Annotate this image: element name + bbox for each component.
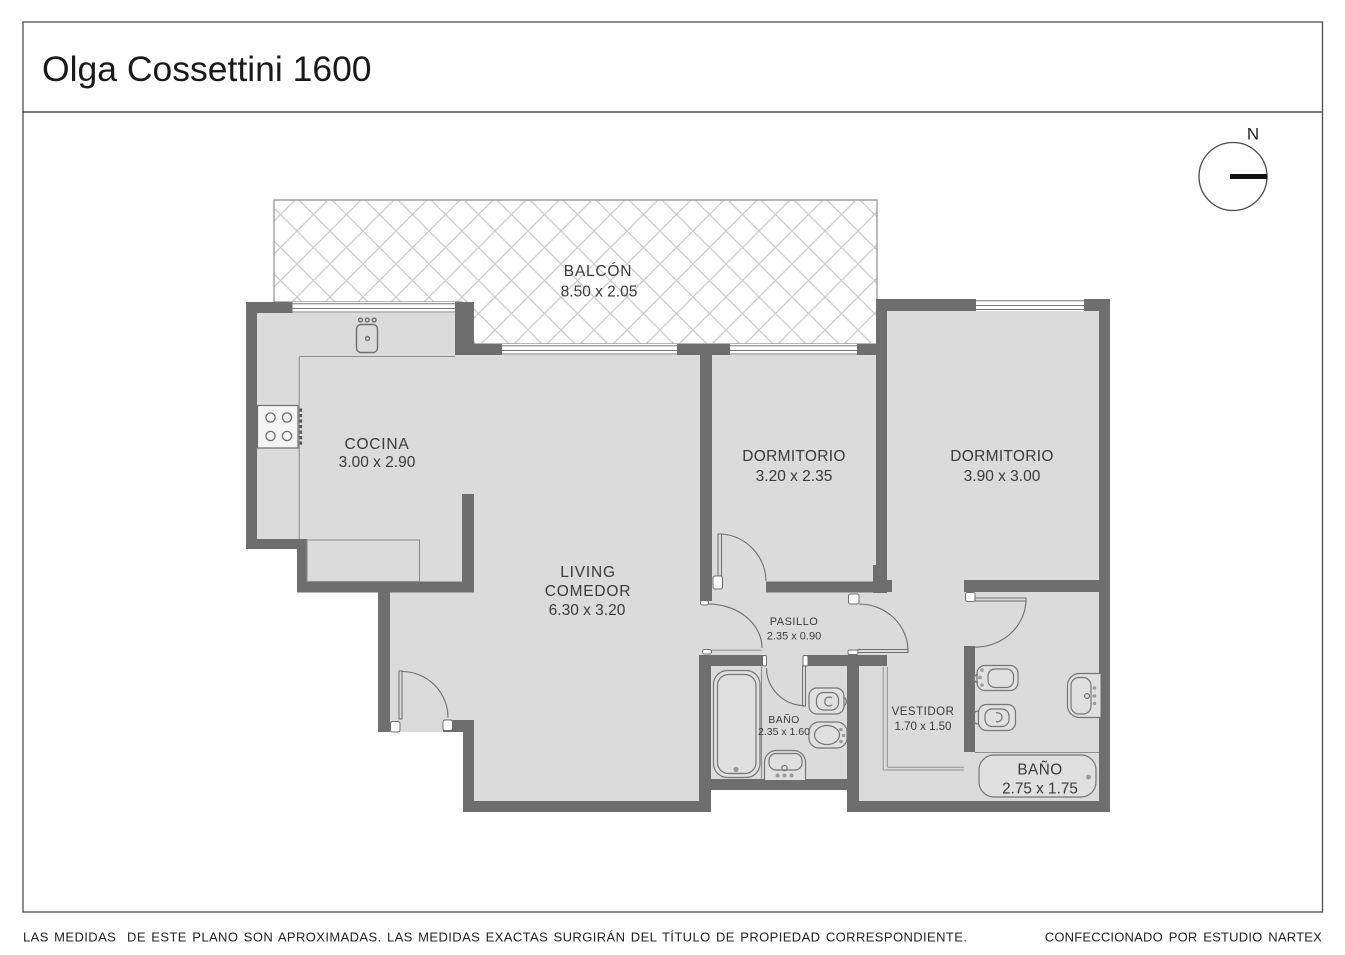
svg-text:CONFECCIONADO POR ESTUDIO NART: CONFECCIONADO POR ESTUDIO NARTEX [1045, 930, 1322, 945]
svg-text:PASILLO: PASILLO [770, 616, 819, 628]
svg-text:LIVING: LIVING [560, 564, 616, 581]
svg-text:BAÑO: BAÑO [1017, 762, 1062, 779]
svg-text:6.30 x 3.20: 6.30 x 3.20 [549, 602, 626, 619]
svg-text:BALCÓN: BALCÓN [564, 263, 633, 280]
svg-text:LAS MEDIDAS DE ESTE PLANO SON: LAS MEDIDAS DE ESTE PLANO SON APROXIMADA… [23, 930, 967, 945]
svg-text:N: N [1247, 125, 1259, 144]
svg-text:BAÑO: BAÑO [768, 713, 799, 726]
svg-text:COMEDOR: COMEDOR [545, 583, 632, 600]
svg-text:DORMITORIO: DORMITORIO [950, 448, 1053, 465]
svg-text:DORMITORIO: DORMITORIO [742, 448, 845, 465]
svg-text:2.35 x 0.90: 2.35 x 0.90 [767, 631, 821, 643]
svg-text:COCINA: COCINA [344, 436, 409, 453]
svg-text:8.50 x 2.05: 8.50 x 2.05 [561, 284, 638, 301]
svg-text:1.70 x 1.50: 1.70 x 1.50 [895, 721, 952, 733]
svg-text:3.20 x 2.35: 3.20 x 2.35 [756, 468, 833, 485]
svg-text:VESTIDOR: VESTIDOR [892, 706, 955, 718]
svg-text:2.35 x 1.60: 2.35 x 1.60 [758, 726, 810, 738]
svg-text:2.75 x 1.75: 2.75 x 1.75 [1002, 781, 1078, 798]
svg-text:3.00 x 2.90: 3.00 x 2.90 [339, 454, 416, 471]
svg-text:3.90 x 3.00: 3.90 x 3.00 [964, 468, 1041, 485]
svg-text:Olga Cossettini 1600: Olga Cossettini 1600 [42, 49, 372, 89]
